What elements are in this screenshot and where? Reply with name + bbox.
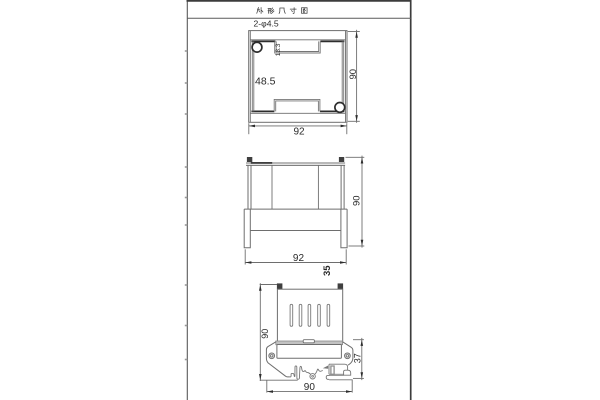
svg-text:37: 37: [353, 353, 363, 363]
svg-text:90: 90: [348, 69, 359, 80]
svg-text:90: 90: [260, 329, 270, 339]
svg-text:92: 92: [294, 127, 306, 138]
svg-text:48.5: 48.5: [255, 76, 276, 88]
svg-text:35: 35: [322, 265, 333, 276]
svg-text:92: 92: [293, 253, 305, 264]
svg-text:90: 90: [304, 382, 316, 393]
svg-text:2-φ4.5: 2-φ4.5: [254, 19, 279, 29]
svg-text:13.3: 13.3: [275, 43, 282, 56]
svg-text:90: 90: [351, 195, 362, 206]
